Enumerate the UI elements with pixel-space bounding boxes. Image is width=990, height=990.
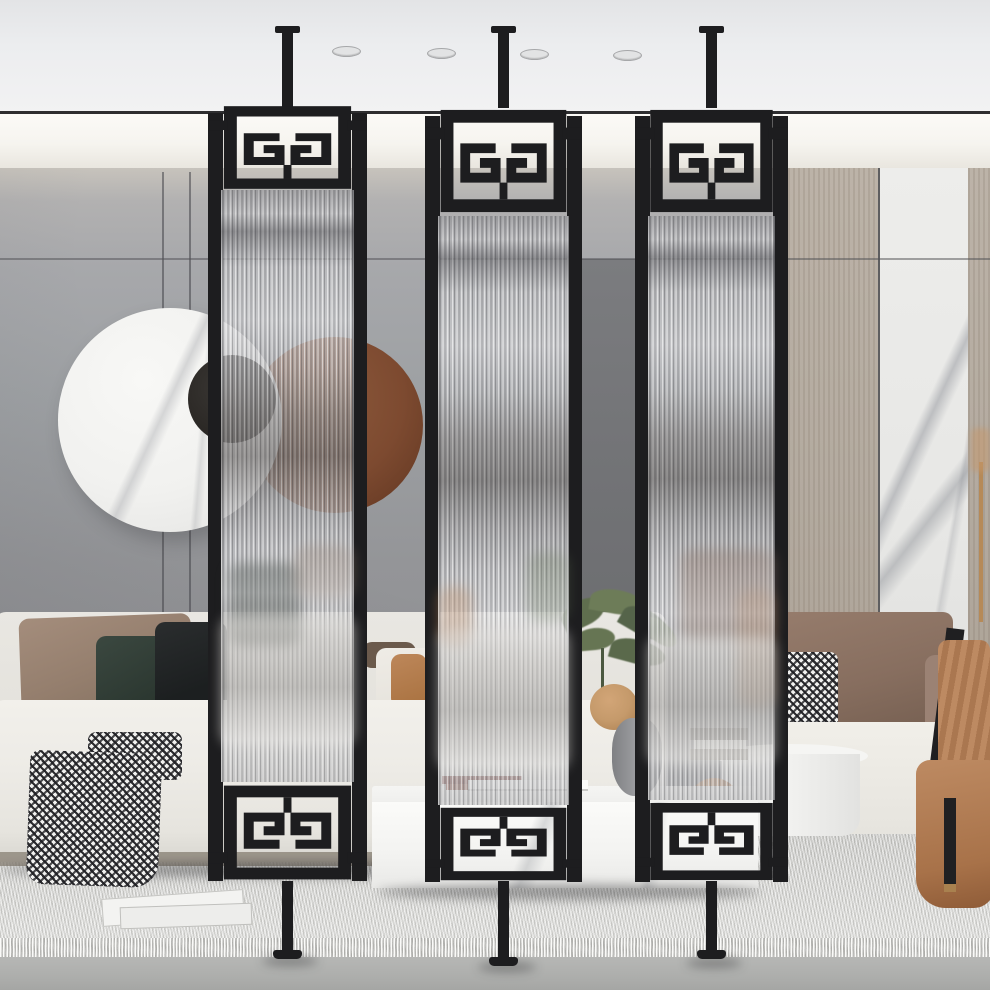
- screen2-top-pole: [498, 31, 509, 108]
- greek-key-ornament-bottom: [425, 805, 582, 883]
- recessed-light-icon: [332, 46, 361, 57]
- divider-screen-1: [208, 103, 367, 883]
- ceiling: [0, 0, 990, 114]
- greek-key-ornament-top: [208, 103, 367, 192]
- screen2-floor-foot: [489, 957, 518, 966]
- glass-reflection-plant: [527, 552, 569, 623]
- greek-key-ornament-top: [425, 106, 582, 216]
- floor-lamp-stem: [979, 462, 983, 622]
- screen3-floor-foot: [697, 950, 726, 959]
- screen3-top-pole: [706, 31, 717, 108]
- screen2-fluted-glass: [438, 216, 569, 805]
- glass-reflection-pillow: [294, 545, 354, 598]
- screen2-right-rail: [567, 116, 582, 882]
- coffee-table-shadow: [378, 884, 760, 900]
- screen1-top-pole: [282, 31, 293, 107]
- houndstooth-pillow: [780, 652, 838, 732]
- glass-reflection-sofa: [648, 636, 775, 764]
- divider-screen-2: [425, 106, 582, 883]
- floor-lamp-glow: [971, 428, 990, 472]
- chair-leg-brass-tip: [944, 884, 956, 892]
- greek-key-ornament-top: [635, 106, 788, 216]
- screen1-fluted-glass: [221, 190, 354, 782]
- screen3-bottom-pole: [706, 881, 717, 952]
- greek-key-ornament-bottom: [208, 782, 367, 883]
- houndstooth-blanket-drape: [26, 750, 163, 889]
- screen2-bottom-pole: [498, 881, 509, 960]
- living-room-scene: [0, 0, 990, 990]
- greek-key-ornament-bottom: [635, 800, 788, 883]
- chair-leg: [944, 798, 956, 890]
- screen3-fluted-glass: [648, 216, 775, 800]
- screen1-right-rail: [352, 113, 367, 881]
- screen3-right-rail: [773, 116, 788, 882]
- divider-screen-3: [635, 106, 788, 883]
- recessed-light-icon: [613, 50, 642, 61]
- recessed-light-icon: [427, 48, 456, 59]
- screen-foot-shadow: [686, 958, 742, 968]
- screen1-floor-foot: [273, 950, 302, 959]
- glass-reflection-sofa: [438, 628, 569, 769]
- screen1-bottom-pole: [282, 881, 293, 952]
- magazine: [120, 903, 253, 930]
- glass-reflection-sofa: [221, 616, 354, 746]
- recessed-light-icon: [520, 49, 549, 60]
